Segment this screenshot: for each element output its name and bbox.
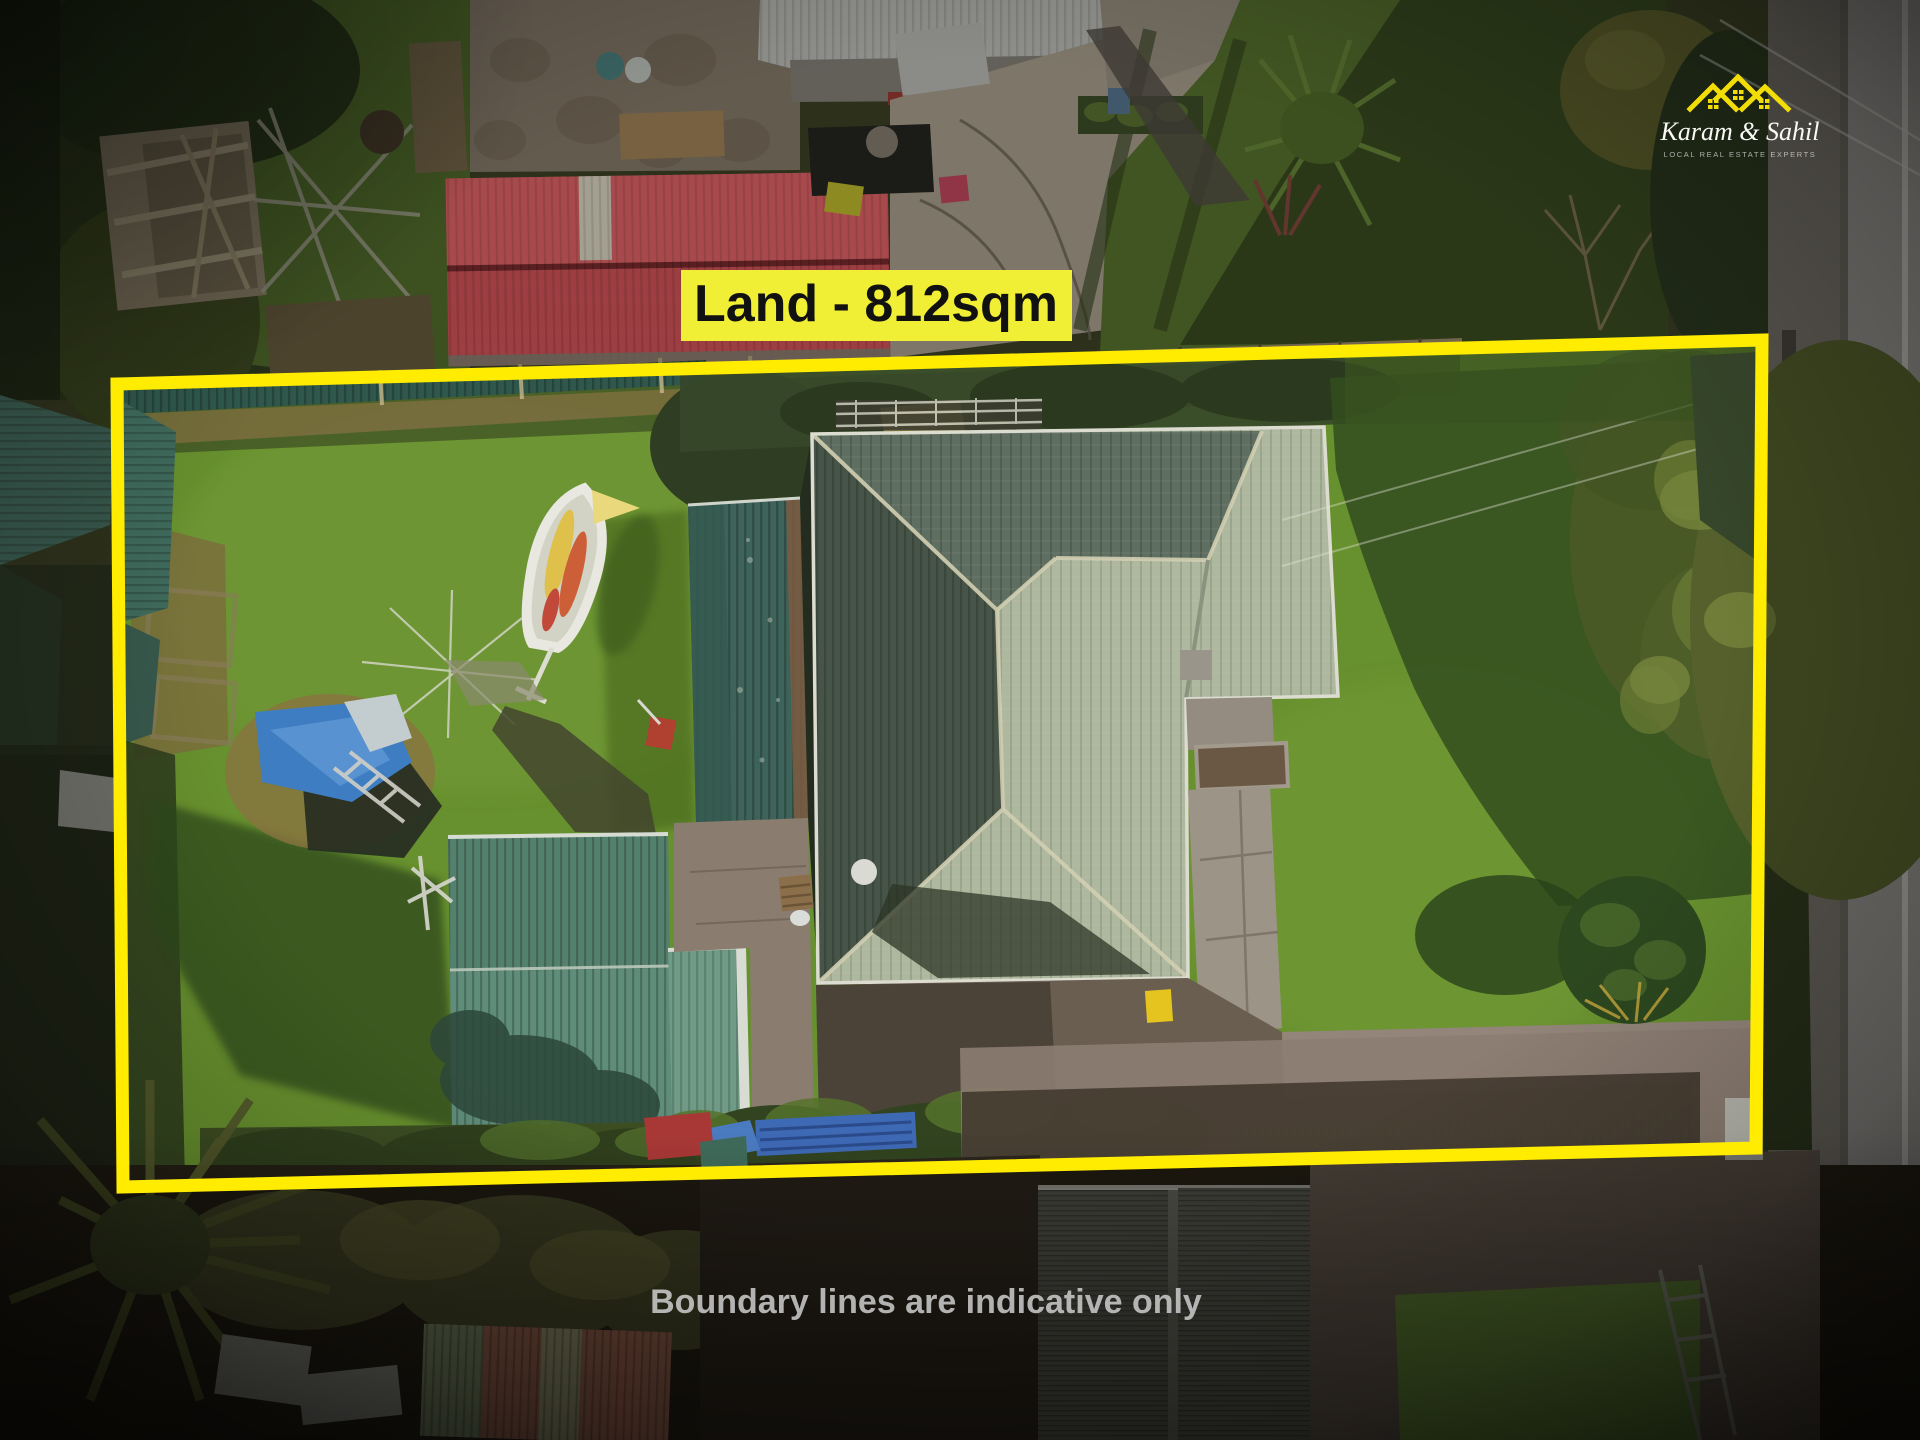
- svg-text:Karam & Sahil: Karam & Sahil: [1660, 117, 1820, 146]
- svg-text:Land - 812sqm: Land - 812sqm: [694, 275, 1058, 333]
- svg-text:LOCAL REAL ESTATE EXPERTS: LOCAL REAL ESTATE EXPERTS: [1664, 150, 1817, 159]
- svg-text:Boundary lines are indicative: Boundary lines are indicative only: [650, 1283, 1202, 1321]
